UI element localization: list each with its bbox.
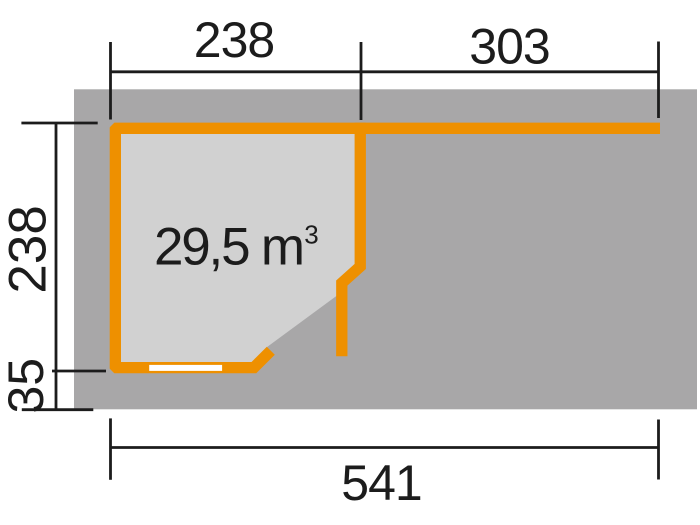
svg-text:35: 35 (0, 358, 54, 414)
svg-text:238: 238 (0, 205, 58, 293)
svg-text:541: 541 (341, 455, 421, 511)
svg-text:238: 238 (194, 12, 274, 68)
svg-text:303: 303 (469, 19, 549, 75)
svg-text:3: 3 (304, 219, 318, 249)
svg-text:29,5 m: 29,5 m (154, 217, 303, 276)
